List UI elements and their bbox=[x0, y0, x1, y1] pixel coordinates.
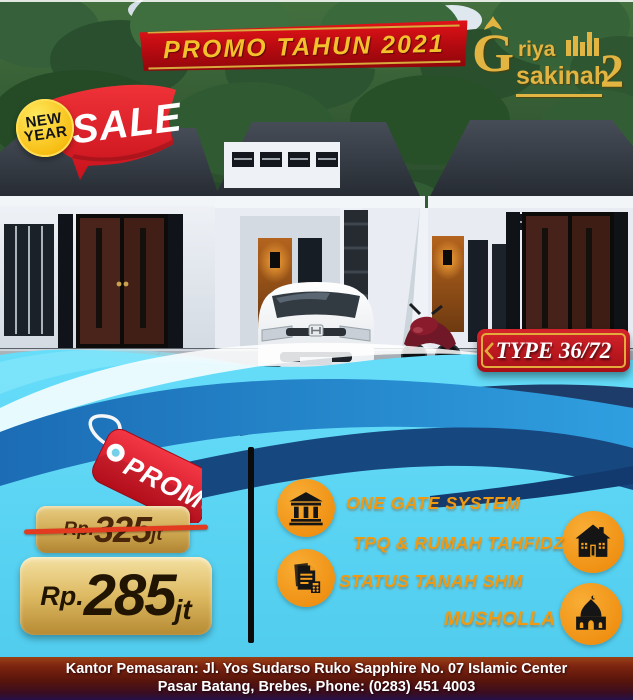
left-arrow-icon bbox=[484, 342, 494, 360]
new-price-unit: jt bbox=[175, 594, 192, 626]
logo-part1: riya bbox=[518, 38, 555, 62]
mosque-icon bbox=[560, 583, 622, 645]
new-price-currency: Rp. bbox=[40, 581, 84, 612]
promo-banner-text: PROMO TAHUN 2021 bbox=[163, 29, 445, 64]
top-border bbox=[0, 0, 633, 2]
feature-tpq-rumah-tahfidz: TPQ & RUMAH TAHFIDZ bbox=[353, 533, 564, 554]
griya-sakinah-logo: G riya sakinah 2 bbox=[470, 20, 632, 100]
logo-underline bbox=[516, 94, 602, 97]
new-year-badge: NEW YEAR bbox=[16, 99, 74, 157]
house-icon bbox=[562, 511, 624, 573]
type-badge-text: TYPE 36/72 bbox=[496, 338, 612, 364]
logo-number: 2 bbox=[600, 44, 624, 99]
bank-icon bbox=[277, 479, 335, 537]
promo-poster: PROMO TAHUN 2021 G riya sakinah 2 SALE bbox=[0, 0, 633, 700]
footer-bar: Kantor Pemasaran: Jl. Yos Sudarso Ruko S… bbox=[0, 657, 633, 700]
building-bars-icon bbox=[566, 30, 600, 58]
divider-line bbox=[248, 447, 254, 643]
new-price-amount: 285 bbox=[84, 567, 175, 625]
new-year-line2: YEAR bbox=[23, 125, 68, 145]
logo-initial: G bbox=[472, 26, 514, 80]
logo-part2: sakinah bbox=[516, 62, 609, 91]
feature-status-tanah-shm: STATUS TANAH SHM bbox=[339, 571, 523, 592]
footer-address-line2: Pasar Batang, Brebes, Phone: (0283) 451 … bbox=[158, 679, 476, 696]
document-icon bbox=[277, 549, 335, 607]
type-badge: TYPE 36/72 bbox=[477, 329, 630, 372]
feature-one-gate-system: ONE GATE SYSTEM bbox=[346, 493, 520, 514]
footer-address-line1: Kantor Pemasaran: Jl. Yos Sudarso Ruko S… bbox=[66, 661, 568, 678]
feature-musholla: MUSHOLLA bbox=[444, 609, 556, 631]
new-price: Rp.285jt bbox=[20, 557, 212, 635]
